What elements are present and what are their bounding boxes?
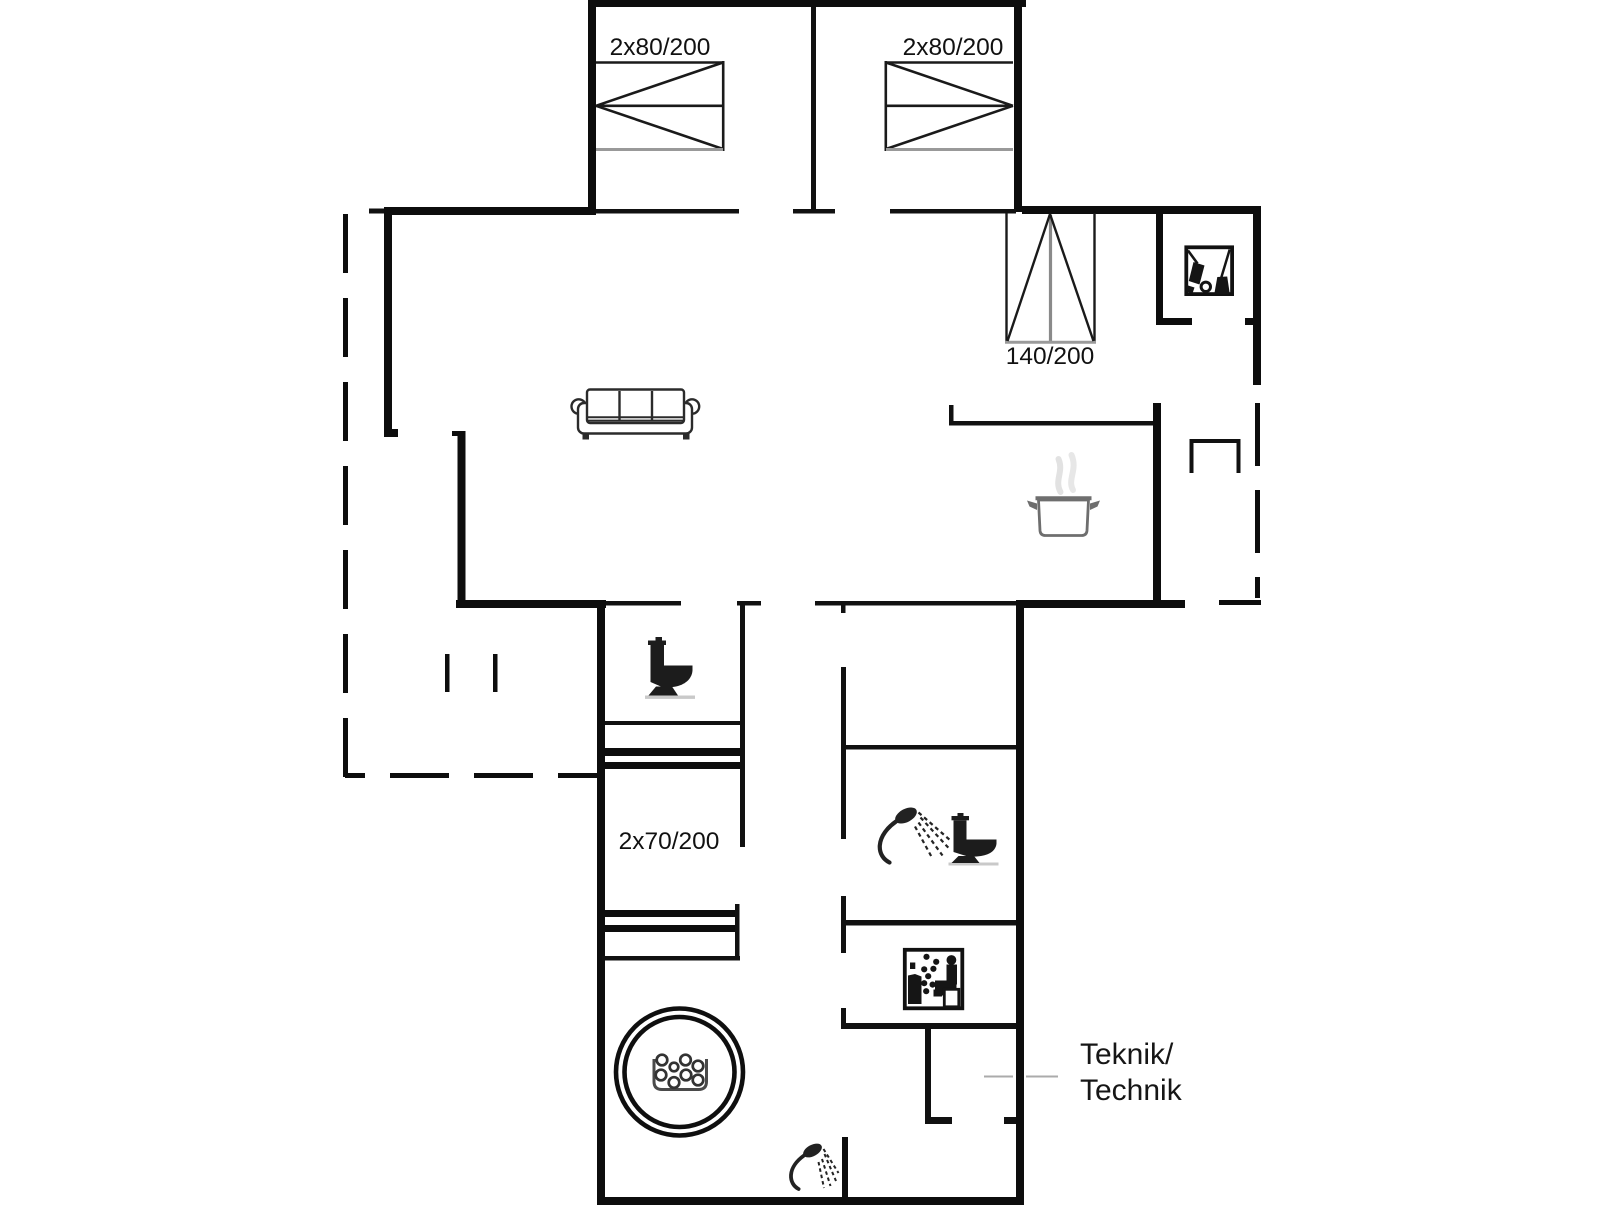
svg-text:2x80/200: 2x80/200	[610, 34, 711, 61]
svg-text:2x80/200: 2x80/200	[903, 34, 1004, 61]
svg-text:Technik: Technik	[1080, 1074, 1183, 1107]
svg-text:Teknik/: Teknik/	[1080, 1038, 1174, 1071]
svg-text:2x70/200: 2x70/200	[619, 828, 720, 855]
svg-text:140/200: 140/200	[1006, 343, 1095, 370]
